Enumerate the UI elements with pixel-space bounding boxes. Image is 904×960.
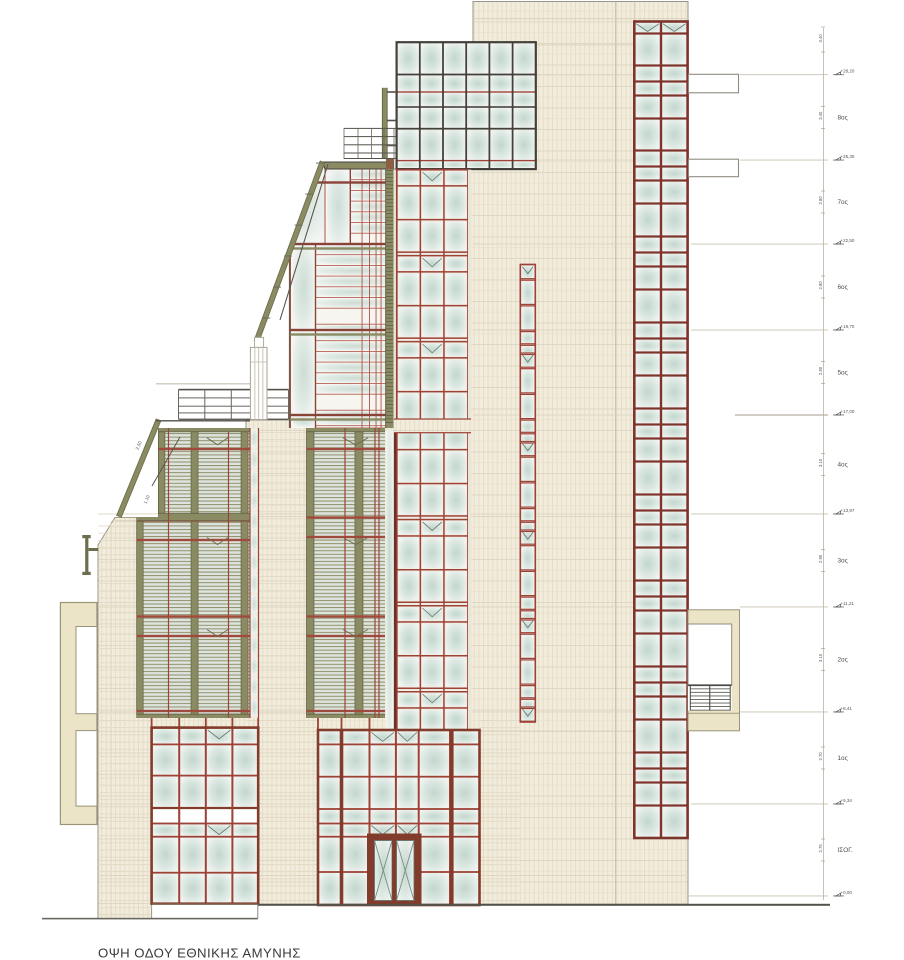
svg-text:2.80: 2.80 <box>818 196 823 205</box>
svg-text:+5,34: +5,34 <box>841 798 853 803</box>
svg-text:+8,41: +8,41 <box>841 706 853 711</box>
svg-text:+28,20: +28,20 <box>841 69 855 74</box>
svg-text:2.75: 2.75 <box>818 844 823 853</box>
svg-text:+11,21: +11,21 <box>841 601 855 606</box>
svg-text:5ος: 5ος <box>838 370 848 377</box>
svg-text:3ος: 3ος <box>838 558 848 565</box>
svg-text:ΙΣΟΓ.: ΙΣΟΓ. <box>838 847 854 854</box>
svg-text:+25,30: +25,30 <box>841 154 855 159</box>
svg-text:2.95: 2.95 <box>818 554 823 563</box>
svg-text:4ος: 4ος <box>838 462 848 469</box>
svg-text:+19,70: +19,70 <box>841 324 855 329</box>
svg-text:1ος: 1ος <box>838 755 848 762</box>
svg-text:+17,00: +17,00 <box>841 409 855 414</box>
svg-text:2ος: 2ος <box>838 657 848 664</box>
svg-text:2.70: 2.70 <box>818 752 823 761</box>
svg-text:3.10: 3.10 <box>818 458 823 467</box>
svg-text:ΟΨΗ ΟΔΟΥ ΕΘΝΙΚΗΣ ΑΜΥΝΗΣ: ΟΨΗ ΟΔΟΥ ΕΘΝΙΚΗΣ ΑΜΥΝΗΣ <box>98 946 301 960</box>
svg-text:7ος: 7ος <box>838 199 848 206</box>
svg-text:+0,00: +0,00 <box>841 890 853 895</box>
svg-text:6ος: 6ος <box>838 284 848 291</box>
svg-text:+22,50: +22,50 <box>841 238 855 243</box>
svg-text:3.10: 3.10 <box>818 653 823 662</box>
svg-text:3.40: 3.40 <box>818 34 823 43</box>
svg-text:3.40: 3.40 <box>818 111 823 120</box>
svg-text:+13,97: +13,97 <box>841 508 855 513</box>
svg-text:2.80: 2.80 <box>818 366 823 375</box>
svg-text:2.80: 2.80 <box>818 281 823 290</box>
svg-text:8ος: 8ος <box>838 115 848 122</box>
